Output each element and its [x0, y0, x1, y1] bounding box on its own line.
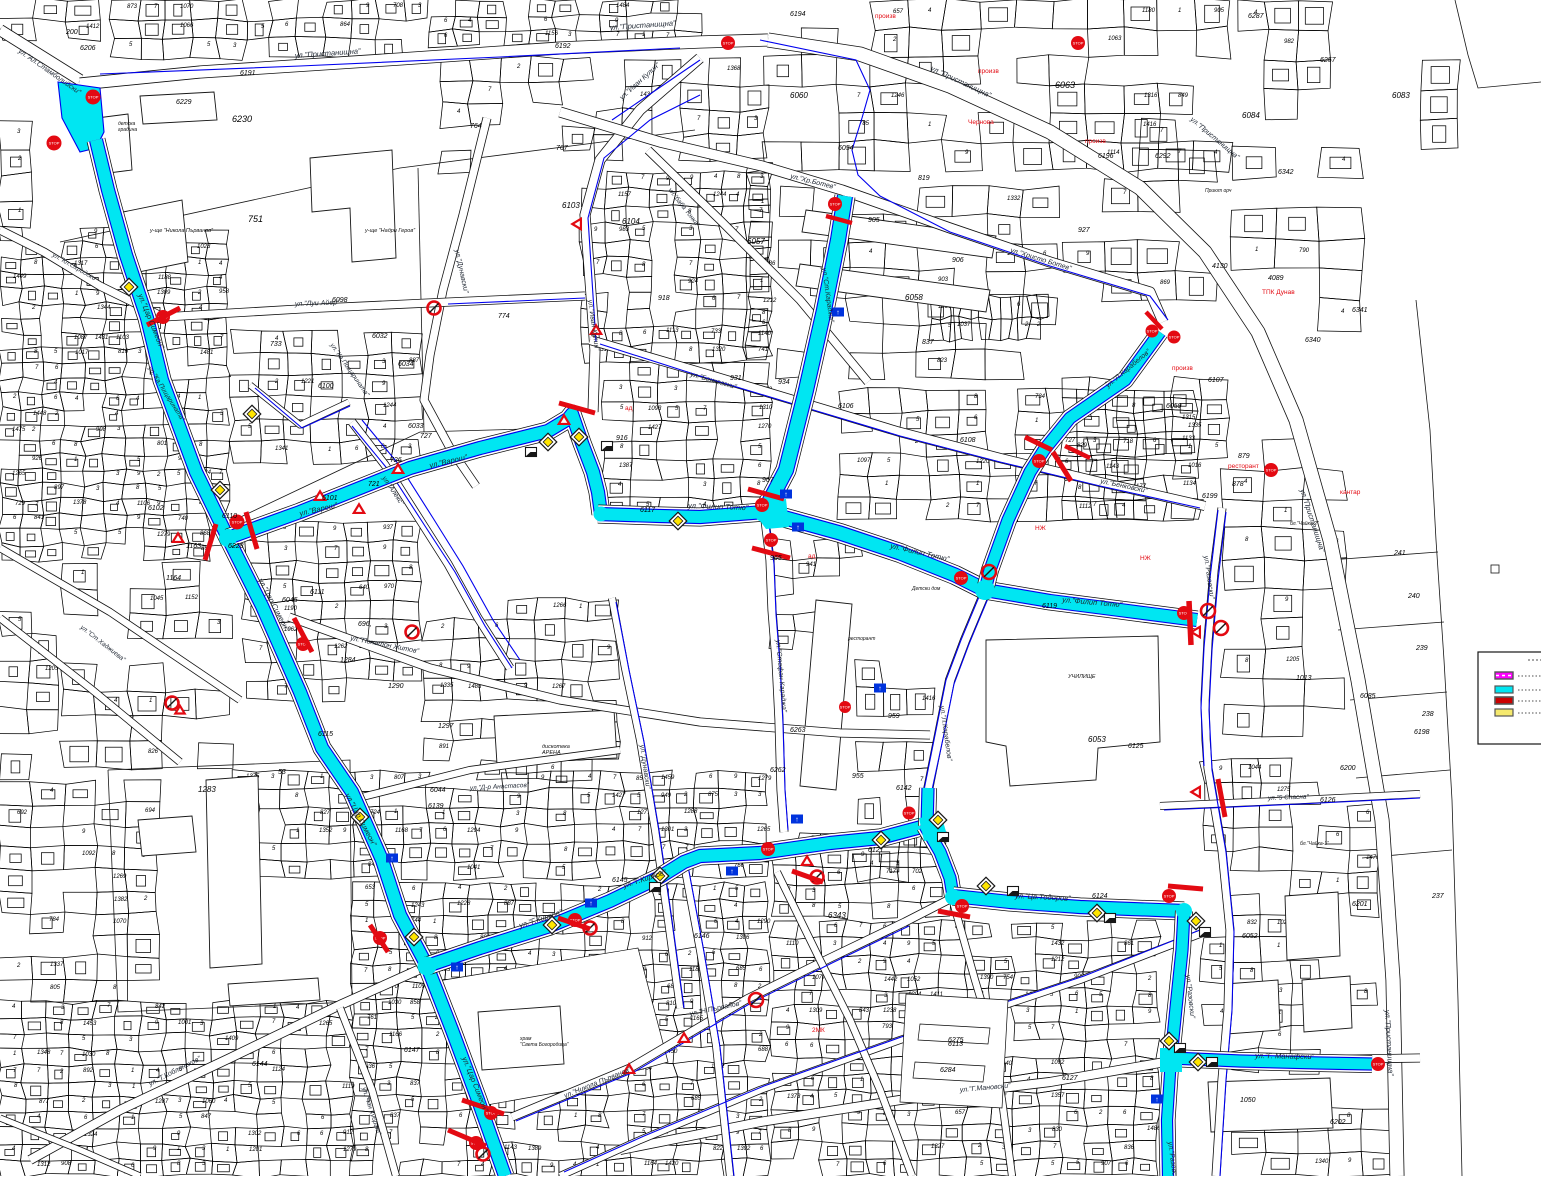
- svg-text:729: 729: [15, 501, 26, 507]
- svg-text:1157: 1157: [618, 192, 632, 198]
- svg-text:Детски дом: Детски дом: [911, 586, 941, 592]
- svg-text:1103: 1103: [116, 335, 130, 341]
- svg-text:767: 767: [556, 145, 569, 152]
- svg-text:1070: 1070: [180, 4, 194, 10]
- svg-text:868: 868: [200, 531, 211, 537]
- svg-text:6146: 6146: [694, 933, 710, 940]
- svg-text:STOP: STOP: [830, 202, 841, 207]
- svg-text:959: 959: [888, 713, 900, 720]
- svg-text:903: 903: [938, 277, 949, 283]
- svg-text:1: 1: [131, 1068, 134, 1074]
- svg-text:830: 830: [1052, 1127, 1063, 1133]
- svg-text:740: 740: [178, 516, 189, 522]
- svg-text:640: 640: [359, 585, 370, 591]
- svg-text:897: 897: [54, 485, 65, 491]
- svg-text:858: 858: [410, 1000, 421, 1006]
- svg-text:1092: 1092: [82, 851, 96, 857]
- svg-text:982: 982: [1284, 39, 1295, 45]
- svg-text:↑: ↑: [455, 965, 459, 972]
- svg-text:1357: 1357: [1051, 1093, 1065, 1099]
- svg-text:1265: 1265: [319, 1021, 333, 1027]
- svg-text:1: 1: [713, 886, 716, 892]
- svg-text:2: 2: [81, 1098, 86, 1104]
- svg-text:908: 908: [61, 1161, 72, 1167]
- svg-text:1143: 1143: [504, 1145, 518, 1151]
- svg-text:6111: 6111: [310, 589, 325, 596]
- svg-text:238: 238: [1421, 711, 1434, 718]
- svg-text:1453: 1453: [83, 1021, 97, 1027]
- svg-text:↑: ↑: [836, 310, 840, 317]
- svg-text:↑: ↑: [1155, 1097, 1159, 1104]
- svg-text:1244: 1244: [713, 192, 727, 198]
- svg-text:842: 842: [155, 1004, 166, 1010]
- svg-text:↑: ↑: [589, 901, 593, 908]
- svg-text:2: 2: [334, 604, 339, 610]
- svg-text:1238: 1238: [883, 1008, 897, 1014]
- svg-text:6340: 6340: [1305, 337, 1321, 344]
- svg-text:6085: 6085: [1360, 693, 1376, 700]
- svg-text:1270: 1270: [758, 424, 772, 430]
- svg-text:727: 727: [1065, 438, 1076, 444]
- svg-text:6192: 6192: [555, 43, 571, 50]
- svg-text:784: 784: [49, 917, 60, 923]
- svg-text:822: 822: [713, 1146, 724, 1152]
- svg-text:1290: 1290: [388, 683, 404, 690]
- svg-text:1: 1: [579, 604, 582, 610]
- svg-text:2: 2: [945, 503, 950, 509]
- svg-text:1306: 1306: [736, 935, 750, 941]
- svg-text:6292: 6292: [1155, 153, 1171, 160]
- svg-text:6083: 6083: [1392, 91, 1410, 100]
- svg-text:726: 726: [390, 457, 402, 464]
- svg-text:926: 926: [32, 456, 43, 462]
- svg-text:1201: 1201: [249, 1147, 262, 1153]
- svg-text:1348: 1348: [37, 1050, 51, 1056]
- svg-text:1023: 1023: [197, 244, 211, 250]
- svg-text:983: 983: [619, 227, 630, 233]
- svg-text:1030: 1030: [388, 1000, 402, 1006]
- svg-text:6107: 6107: [1208, 377, 1225, 384]
- svg-text:1475: 1475: [12, 427, 26, 433]
- svg-text:6228: 6228: [228, 543, 244, 550]
- svg-text:1205: 1205: [1286, 657, 1300, 663]
- svg-text:1143: 1143: [1106, 464, 1120, 470]
- svg-text:1: 1: [1178, 8, 1181, 14]
- svg-text:1: 1: [149, 698, 152, 704]
- svg-text:1416: 1416: [922, 696, 936, 702]
- svg-text:1442: 1442: [884, 977, 898, 983]
- svg-text:1: 1: [1277, 943, 1280, 949]
- svg-text:ресторант: ресторант: [1228, 463, 1259, 470]
- svg-text:1052: 1052: [907, 977, 921, 983]
- svg-text:241: 241: [1393, 550, 1406, 557]
- svg-text:1243: 1243: [411, 903, 425, 909]
- svg-text:1: 1: [1035, 418, 1038, 424]
- svg-text:1: 1: [74, 457, 77, 463]
- svg-text:2: 2: [503, 886, 508, 892]
- svg-text:1: 1: [1255, 247, 1258, 253]
- svg-text:6287: 6287: [1248, 13, 1265, 20]
- svg-text:произв: произв: [978, 68, 999, 75]
- svg-text:941: 941: [806, 562, 816, 568]
- svg-text:6230: 6230: [232, 114, 252, 124]
- svg-text:1368: 1368: [727, 66, 741, 72]
- svg-text:УЧИЛИЩЕ: УЧИЛИЩЕ: [1067, 674, 1096, 680]
- svg-text:869: 869: [1160, 280, 1171, 286]
- svg-text:1190: 1190: [284, 606, 298, 612]
- svg-text:1152: 1152: [185, 595, 199, 601]
- svg-text:6124: 6124: [1092, 893, 1108, 900]
- svg-text:6229: 6229: [176, 99, 192, 106]
- svg-text:6194: 6194: [790, 11, 806, 18]
- svg-text:2: 2: [1024, 322, 1029, 328]
- svg-text:1: 1: [296, 828, 299, 834]
- svg-text:841: 841: [34, 515, 44, 521]
- svg-text:2: 2: [1036, 322, 1041, 328]
- svg-text:STOP: STOP: [723, 41, 734, 46]
- svg-text:6343: 6343: [828, 911, 846, 920]
- svg-text:685: 685: [691, 1096, 702, 1102]
- svg-text:6033: 6033: [408, 423, 424, 430]
- svg-text:958: 958: [219, 289, 230, 295]
- svg-text:1: 1: [642, 32, 645, 38]
- svg-text:6032: 6032: [372, 333, 388, 340]
- svg-text:1: 1: [1336, 878, 1339, 884]
- svg-text:949: 949: [661, 793, 672, 799]
- svg-text:1044: 1044: [1248, 765, 1262, 771]
- svg-text:НЖ: НЖ: [1140, 555, 1151, 562]
- svg-text:6127: 6127: [1062, 1075, 1079, 1082]
- svg-text:6125: 6125: [1128, 743, 1144, 750]
- svg-text:1: 1: [328, 447, 331, 453]
- svg-text:829: 829: [1077, 443, 1088, 449]
- svg-text:6275: 6275: [948, 1037, 964, 1044]
- svg-text:1: 1: [177, 1146, 180, 1152]
- svg-text:657: 657: [955, 1110, 966, 1116]
- svg-text:ад: ад: [808, 553, 816, 560]
- svg-text:837: 837: [390, 1113, 401, 1119]
- svg-text:6341: 6341: [1352, 307, 1368, 314]
- svg-text:Приют орч: Приют орч: [1205, 188, 1232, 194]
- svg-text:239: 239: [1415, 645, 1428, 652]
- svg-text:906: 906: [952, 257, 964, 264]
- svg-text:2: 2: [857, 959, 862, 965]
- svg-text:6206: 6206: [80, 45, 96, 52]
- svg-text:1392: 1392: [737, 1146, 751, 1152]
- svg-text:1: 1: [885, 481, 888, 487]
- svg-text:905: 905: [868, 217, 880, 224]
- svg-text:бл.”Чайка-2”: бл.”Чайка-2”: [1290, 520, 1319, 527]
- svg-text:965: 965: [770, 555, 782, 562]
- svg-text:6045: 6045: [282, 597, 298, 604]
- svg-text:1066: 1066: [180, 23, 194, 29]
- svg-text:6121: 6121: [868, 847, 884, 854]
- svg-text:STOP: STOP: [904, 811, 915, 816]
- svg-text:2: 2: [274, 379, 279, 385]
- svg-text:912: 912: [642, 936, 653, 942]
- svg-text:1297: 1297: [438, 723, 455, 730]
- svg-text:1164: 1164: [644, 1161, 658, 1167]
- svg-text:1267: 1267: [552, 684, 566, 690]
- svg-text:6059: 6059: [1166, 403, 1182, 410]
- svg-text:1378: 1378: [73, 500, 87, 506]
- svg-text:1: 1: [442, 810, 445, 816]
- svg-text:6052: 6052: [1242, 933, 1258, 940]
- svg-text:STOP: STOP: [49, 141, 60, 146]
- svg-text:6058: 6058: [905, 293, 923, 302]
- svg-text:1432: 1432: [1051, 941, 1065, 947]
- svg-text:1030: 1030: [82, 1052, 96, 1058]
- svg-text:6108: 6108: [960, 437, 976, 444]
- svg-text:1416: 1416: [1143, 122, 1157, 128]
- svg-text:912: 912: [343, 1130, 354, 1136]
- svg-text:843: 843: [859, 1008, 870, 1014]
- svg-text:916: 916: [616, 435, 628, 442]
- svg-text:1060: 1060: [202, 1099, 216, 1105]
- svg-text:2: 2: [440, 624, 445, 630]
- svg-text:2: 2: [143, 896, 148, 902]
- svg-text:6034: 6034: [398, 361, 414, 368]
- svg-text:892: 892: [83, 1068, 94, 1074]
- svg-text:STOP: STOP: [1169, 335, 1180, 340]
- svg-text:6202: 6202: [1330, 1119, 1346, 1126]
- svg-text:727: 727: [420, 433, 433, 440]
- svg-text:STOP: STOP: [766, 538, 777, 543]
- svg-text:1309: 1309: [157, 290, 171, 296]
- svg-text:6191: 6191: [240, 70, 256, 77]
- svg-text:ул.”5 Спасна”: ул.”5 Спасна”: [1267, 794, 1310, 802]
- svg-text:НЖ: НЖ: [1035, 525, 1046, 532]
- svg-text:6147: 6147: [404, 1047, 421, 1054]
- svg-text:6142: 6142: [896, 785, 912, 792]
- svg-text:1188: 1188: [158, 275, 172, 281]
- svg-text:6063: 6063: [1055, 80, 1075, 90]
- svg-text:1212: 1212: [763, 298, 777, 304]
- svg-text:6257: 6257: [1320, 57, 1337, 64]
- svg-text:832: 832: [1247, 920, 1258, 926]
- svg-text:240: 240: [1407, 593, 1420, 600]
- svg-text:702: 702: [912, 869, 923, 875]
- svg-text:1112: 1112: [1079, 504, 1092, 510]
- svg-text:2: 2: [197, 290, 202, 296]
- svg-text:733: 733: [711, 329, 722, 335]
- svg-text:1212: 1212: [1051, 957, 1065, 963]
- svg-text:1427: 1427: [648, 425, 662, 431]
- svg-text:741: 741: [758, 347, 768, 353]
- svg-text:1164: 1164: [166, 575, 181, 582]
- svg-text:↑: ↑: [796, 525, 800, 532]
- svg-text:847: 847: [201, 1114, 212, 1120]
- svg-text:721: 721: [368, 481, 380, 488]
- svg-text:733: 733: [270, 341, 282, 348]
- svg-text:STOP: STOP: [1266, 468, 1277, 473]
- svg-text:1093: 1093: [648, 406, 662, 412]
- svg-text:6262: 6262: [770, 767, 786, 774]
- svg-text:793: 793: [882, 1024, 893, 1030]
- svg-text:1412: 1412: [86, 24, 100, 30]
- svg-text:1341: 1341: [275, 446, 288, 452]
- svg-text:694: 694: [145, 808, 156, 814]
- svg-text:924: 924: [688, 279, 699, 285]
- svg-text:927: 927: [1078, 227, 1091, 234]
- svg-text:1269: 1269: [113, 874, 127, 880]
- svg-text:801: 801: [157, 441, 167, 447]
- svg-text:1110: 1110: [786, 941, 799, 947]
- svg-text:819: 819: [918, 175, 930, 182]
- svg-text:805: 805: [50, 985, 61, 991]
- svg-text:6057: 6057: [747, 237, 765, 246]
- svg-text:1041: 1041: [467, 865, 480, 871]
- svg-text:807: 807: [394, 775, 405, 781]
- svg-text:↑: ↑: [878, 686, 882, 693]
- svg-text:6084: 6084: [1242, 111, 1260, 120]
- svg-text:6284: 6284: [940, 1067, 956, 1074]
- svg-text:937: 937: [383, 525, 394, 531]
- svg-text:878: 878: [1232, 481, 1244, 488]
- svg-text:237: 237: [1431, 893, 1445, 900]
- svg-text:кантар: кантар: [1340, 489, 1361, 496]
- svg-text:6044: 6044: [430, 787, 446, 794]
- svg-text:”Света Богородица”: ”Света Богородица”: [520, 1042, 569, 1048]
- svg-text:Чернова: Чернова: [968, 119, 994, 126]
- svg-text:1109: 1109: [412, 984, 426, 990]
- svg-text:1244: 1244: [383, 403, 397, 409]
- svg-text:1: 1: [18, 208, 21, 214]
- svg-text:1332: 1332: [1007, 196, 1021, 202]
- svg-text:754: 754: [1003, 975, 1014, 981]
- svg-text:967: 967: [762, 477, 775, 484]
- svg-text:1013: 1013: [1296, 675, 1312, 682]
- svg-text:6144: 6144: [252, 1061, 268, 1068]
- svg-text:1373: 1373: [787, 1094, 801, 1100]
- svg-text:6100: 6100: [318, 383, 334, 390]
- svg-text:1: 1: [1284, 508, 1287, 514]
- svg-text:2: 2: [59, 1069, 64, 1075]
- svg-text:1312: 1312: [37, 1162, 51, 1168]
- svg-text:1070: 1070: [113, 919, 127, 925]
- svg-text:1390: 1390: [980, 975, 994, 981]
- svg-text:891: 891: [439, 744, 449, 750]
- svg-text:1335: 1335: [440, 683, 454, 689]
- svg-text:1484: 1484: [616, 3, 630, 9]
- svg-text:1481: 1481: [200, 350, 213, 356]
- svg-text:6342: 6342: [1278, 169, 1294, 176]
- svg-text:1309: 1309: [809, 1008, 823, 1014]
- svg-text:827: 827: [320, 810, 331, 816]
- svg-text:1163: 1163: [186, 543, 201, 550]
- svg-text:1: 1: [365, 918, 368, 924]
- svg-text:STOP: STOP: [232, 520, 243, 525]
- svg-text:6098: 6098: [332, 297, 348, 304]
- svg-text:864: 864: [340, 22, 351, 28]
- svg-text:произв: произв: [1085, 138, 1106, 145]
- svg-text:STOP: STOP: [957, 904, 968, 909]
- svg-text:1431: 1431: [95, 335, 108, 341]
- svg-text:6053: 6053: [1088, 735, 1106, 744]
- svg-text:↑: ↑: [730, 869, 734, 876]
- svg-text:849: 849: [1178, 93, 1189, 99]
- svg-text:1337: 1337: [50, 962, 64, 968]
- svg-text:751: 751: [248, 214, 263, 224]
- svg-text:2: 2: [683, 792, 688, 798]
- svg-text:1352: 1352: [319, 828, 333, 834]
- svg-text:↑: ↑: [795, 817, 799, 824]
- svg-text:1: 1: [13, 1051, 16, 1057]
- svg-text:1246: 1246: [891, 93, 905, 99]
- svg-text:6199: 6199: [1202, 493, 1218, 500]
- svg-text:1288: 1288: [684, 809, 698, 815]
- svg-text:718: 718: [1123, 439, 1134, 445]
- svg-text:6139: 6139: [428, 803, 444, 810]
- svg-text:6115: 6115: [318, 731, 333, 738]
- svg-text:6145: 6145: [612, 877, 628, 884]
- svg-text:1156: 1156: [545, 31, 559, 37]
- svg-text:2: 2: [1098, 1110, 1103, 1116]
- svg-text:6104: 6104: [622, 217, 640, 226]
- svg-text:1134: 1134: [1183, 481, 1197, 487]
- svg-text:6106: 6106: [838, 403, 854, 410]
- svg-text:1387: 1387: [619, 463, 633, 469]
- svg-text:1283: 1283: [198, 785, 216, 794]
- svg-text:879: 879: [1238, 453, 1250, 460]
- svg-text:1279: 1279: [758, 776, 772, 782]
- svg-text:1340: 1340: [1315, 1159, 1329, 1165]
- svg-text:1: 1: [131, 1115, 134, 1121]
- svg-text:1279: 1279: [157, 532, 171, 538]
- svg-text:2МК: 2МК: [812, 1027, 825, 1034]
- svg-text:2: 2: [977, 1143, 982, 1149]
- svg-text:861: 861: [1124, 941, 1134, 947]
- svg-text:градина: градина: [118, 127, 137, 133]
- svg-text:1287: 1287: [155, 1099, 169, 1105]
- svg-text:ул.”Г. Манафски”: ул.”Г. Манафски”: [1254, 1051, 1315, 1061]
- svg-text:1: 1: [198, 260, 201, 266]
- svg-text:1: 1: [75, 291, 78, 297]
- svg-text:1228: 1228: [457, 901, 471, 907]
- svg-text:АРЕНА: АРЕНА: [541, 750, 561, 756]
- svg-text:6196: 6196: [1098, 153, 1114, 160]
- svg-text:1449: 1449: [13, 274, 27, 280]
- svg-text:2: 2: [892, 37, 897, 43]
- svg-text:1097: 1097: [857, 458, 871, 464]
- svg-text:1166: 1166: [389, 1032, 403, 1038]
- svg-text:2: 2: [156, 472, 161, 478]
- svg-text:998: 998: [96, 427, 107, 433]
- svg-text:STOP: STOP: [1034, 459, 1045, 464]
- svg-text:836: 836: [1124, 1145, 1135, 1151]
- svg-text:2: 2: [597, 887, 602, 893]
- svg-text:ТПК Дунав: ТПК Дунав: [1262, 289, 1295, 296]
- svg-text:1001: 1001: [178, 1020, 191, 1026]
- svg-text:1290: 1290: [757, 919, 771, 925]
- svg-text:1: 1: [760, 278, 763, 284]
- svg-text:1: 1: [132, 1084, 135, 1090]
- svg-text:STOP: STOP: [1147, 329, 1158, 334]
- svg-text:6110: 6110: [222, 513, 237, 520]
- svg-text:1063: 1063: [1108, 36, 1122, 42]
- svg-text:1: 1: [574, 1113, 577, 1119]
- svg-text:837: 837: [410, 1081, 421, 1087]
- svg-text:6126: 6126: [1320, 797, 1336, 804]
- svg-text:816: 816: [118, 349, 129, 355]
- svg-text:790: 790: [1299, 248, 1310, 254]
- svg-text:934: 934: [778, 379, 790, 386]
- svg-text:53: 53: [278, 769, 286, 776]
- svg-text:1: 1: [761, 199, 764, 205]
- svg-text:1409: 1409: [225, 1036, 239, 1042]
- svg-text:685: 685: [736, 966, 747, 972]
- svg-text:1133: 1133: [1182, 436, 1196, 442]
